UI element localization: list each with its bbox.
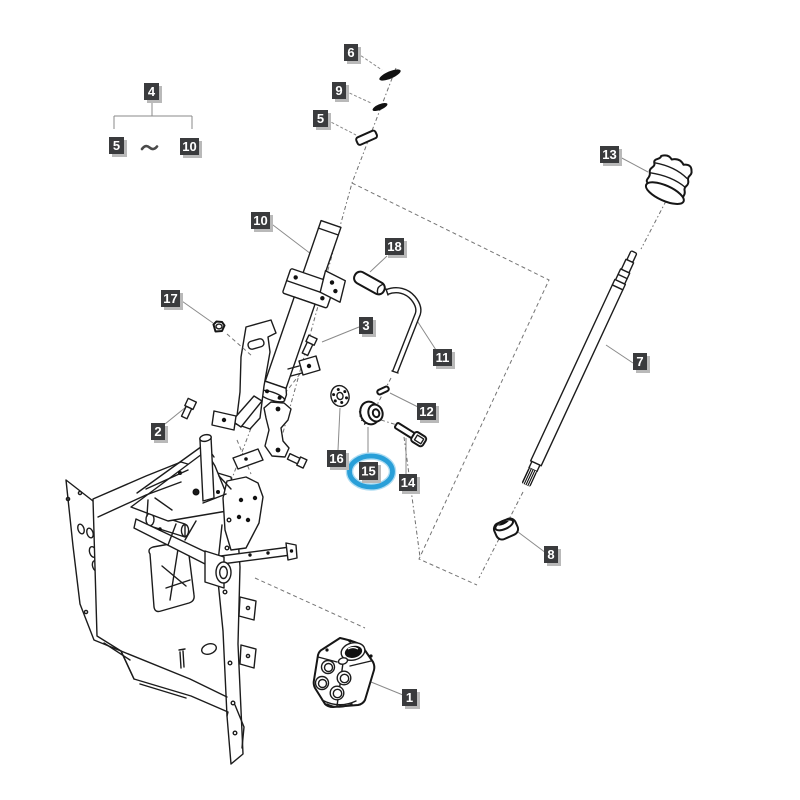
svg-text:11: 11 bbox=[436, 350, 450, 365]
svg-text:2: 2 bbox=[154, 424, 161, 439]
svg-text:15: 15 bbox=[361, 464, 375, 479]
svg-text:16: 16 bbox=[329, 451, 343, 466]
svg-text:14: 14 bbox=[401, 475, 416, 490]
svg-text:4: 4 bbox=[148, 84, 156, 99]
svg-text:8: 8 bbox=[547, 547, 554, 562]
svg-text:7: 7 bbox=[636, 354, 643, 369]
svg-text:9: 9 bbox=[335, 83, 342, 98]
svg-text:13: 13 bbox=[602, 147, 616, 162]
svg-text:5: 5 bbox=[317, 111, 324, 126]
svg-text:10: 10 bbox=[253, 213, 267, 228]
svg-text:17: 17 bbox=[163, 291, 177, 306]
svg-text:3: 3 bbox=[362, 318, 369, 333]
svg-text:1: 1 bbox=[406, 690, 413, 705]
svg-text:5: 5 bbox=[113, 138, 120, 153]
svg-text:6: 6 bbox=[347, 45, 354, 60]
svg-text:18: 18 bbox=[387, 239, 401, 254]
svg-text:12: 12 bbox=[419, 404, 433, 419]
svg-text:10: 10 bbox=[182, 139, 196, 154]
